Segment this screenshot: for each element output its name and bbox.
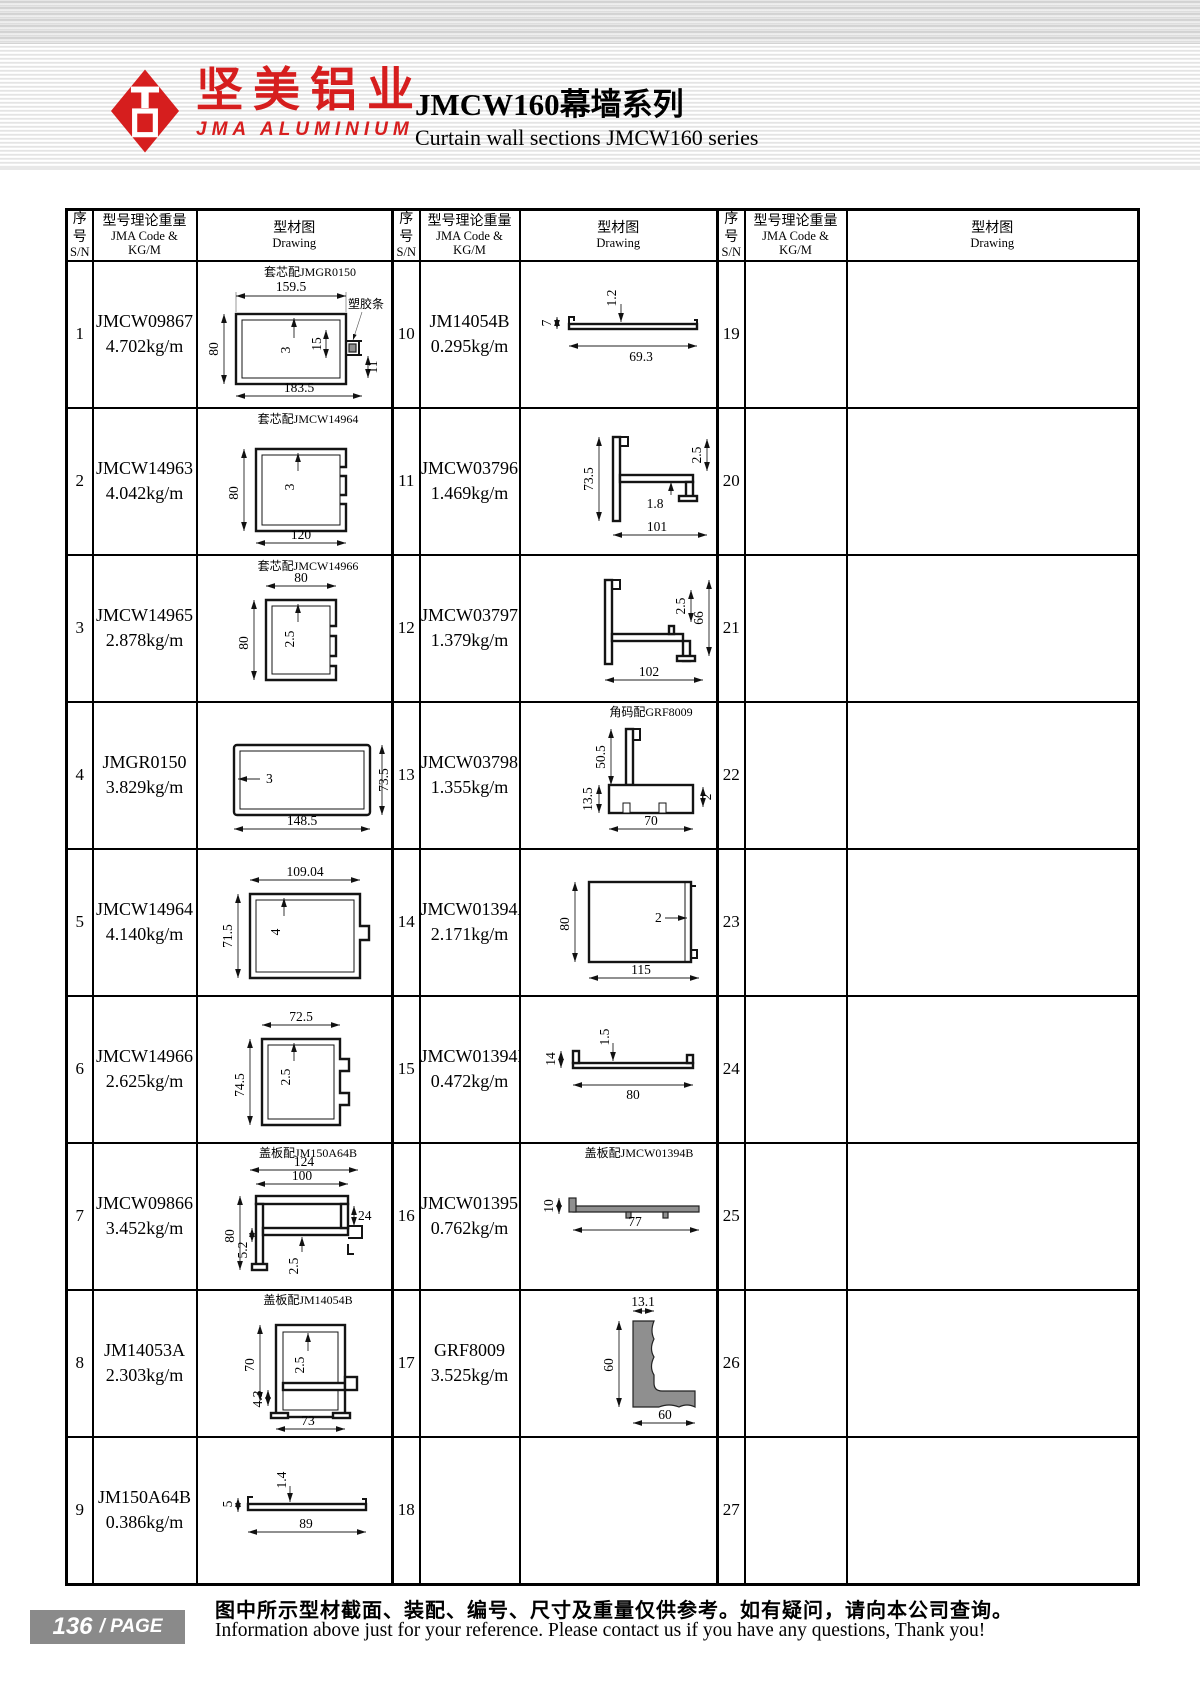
drawing-cell: 7 1.2 69.3: [520, 261, 718, 408]
sn-cell: 11: [393, 408, 420, 555]
dim-label: 7: [539, 319, 554, 326]
code-cell: JMCW037961.469kg/m: [420, 408, 520, 555]
sn-cell: 1: [67, 261, 93, 408]
dim-label: 80: [294, 570, 308, 585]
drawing-note: 套芯配JMCW14966: [257, 559, 358, 573]
dim-label: 115: [631, 962, 651, 977]
profile-drawing-jm14053a: 盖板配JM14054B 70 2.5 4.3 73: [198, 1291, 393, 1436]
dim-label: 13.5: [580, 787, 595, 811]
plastic-strip-label: 塑胶条: [347, 296, 383, 311]
dim-label: 50.5: [593, 745, 608, 769]
sn-cell: 16: [393, 1143, 420, 1290]
dim-label: 159.5: [275, 279, 306, 294]
header-top-band: [0, 0, 1200, 44]
dim-label: 73.5: [376, 768, 391, 792]
drawing-note: 盖板配JMCW01394B: [584, 1146, 693, 1160]
sn-cell: 19: [718, 261, 745, 408]
sn-cell: 14: [393, 849, 420, 996]
sn-cell: 13: [393, 702, 420, 849]
sn-cell: 22: [718, 702, 745, 849]
dim-label: 72.5: [289, 1009, 313, 1024]
code-cell: JMCW149652.878kg/m: [93, 555, 197, 702]
code-cell: JMCW01394A2.171kg/m: [420, 849, 520, 996]
dim-label: 2.5: [689, 446, 704, 463]
sn-cell: 26: [718, 1290, 745, 1437]
sn-cell: 27: [718, 1437, 745, 1585]
page-label: / PAGE: [100, 1616, 163, 1638]
col-header-drawing: 型材图Drawing: [847, 210, 1139, 261]
profile-drawing-jmcw03796: 73.5 2.5 1.8 101: [521, 409, 718, 554]
sn-cell: 4: [67, 702, 93, 849]
dim-label: 73: [301, 1413, 315, 1428]
footer-note-en: Information above just for your referenc…: [215, 1620, 985, 1642]
dim-label: 2.5: [673, 597, 688, 614]
code-cell-empty: [745, 1290, 847, 1437]
dim-label: 60: [658, 1407, 672, 1422]
page-number: 136: [52, 1613, 92, 1641]
code-cell: JM14053A2.303kg/m: [93, 1290, 197, 1437]
drawing-cell: 14 1.5 80: [520, 996, 718, 1143]
sn-cell: 15: [393, 996, 420, 1143]
dim-label: 24: [358, 1208, 372, 1223]
dim-label: 2.5: [292, 1356, 307, 1373]
dim-label: 4.3: [250, 1390, 265, 1407]
profile-drawing-jmcw14964: 109.04 71.5 4: [198, 850, 393, 995]
dim-label: 101: [646, 519, 666, 534]
col-header-sn: 序号S/N: [393, 210, 420, 261]
table-row: 1 JMCW098674.702kg/m 套芯配JMGR0150 159.5 8…: [67, 261, 1139, 408]
code-cell: JMCW01394B0.472kg/m: [420, 996, 520, 1143]
table-header-row: 序号S/N 型号理论重量JMA Code & KG/M 型材图Drawing 序…: [67, 210, 1139, 261]
dim-label: 80: [626, 1087, 640, 1102]
dim-label: 10: [541, 1199, 556, 1213]
footer-note-zh: 图中所示型材截面、装配、编号、尺寸及重量仅供参考。如有疑问，请向本公司查询。: [215, 1594, 1013, 1623]
dim-label: 124: [293, 1154, 314, 1169]
drawing-note: 盖板配JM14054B: [263, 1293, 352, 1307]
profile-drawing-jmcw01394a: 80 2 115: [521, 850, 718, 995]
drawing-cell-empty: [847, 555, 1139, 702]
dim-label: 60: [601, 1358, 616, 1372]
dim-label: 1.5: [597, 1028, 612, 1045]
brand-name-en: JMA ALUMINIUM: [196, 119, 424, 141]
brand-logo: 坚美铝业 JMA ALUMINIUM: [108, 66, 424, 156]
dim-label: 74.5: [232, 1073, 247, 1097]
drawing-cell-empty: [520, 1437, 718, 1585]
dim-label: 2: [699, 793, 714, 800]
sn-cell: 9: [67, 1437, 93, 1585]
dim-label: 70: [644, 813, 658, 828]
dim-label: 66: [691, 611, 706, 625]
sn-cell: 18: [393, 1437, 420, 1585]
table-row: 8 JM14053A2.303kg/m 盖板配JM14054B 70 2.5 4…: [67, 1290, 1139, 1437]
drawing-cell: 套芯配JMCW14964 80 3 120: [197, 408, 393, 555]
sn-cell: 8: [67, 1290, 93, 1437]
drawing-note: 角码配GRF8009: [609, 705, 692, 719]
code-cell-empty: [745, 555, 847, 702]
profile-catalog-table: 序号S/N 型号理论重量JMA Code & KG/M 型材图Drawing 序…: [65, 208, 1140, 1586]
sn-cell: 20: [718, 408, 745, 555]
code-cell: GRF80093.525kg/m: [420, 1290, 520, 1437]
sn-cell: 2: [67, 408, 93, 555]
dim-label: 2.5: [286, 1257, 301, 1274]
col-header-drawing: 型材图Drawing: [520, 210, 718, 261]
drawing-cell: 套芯配JMGR0150 159.5 80 3 15 11 183.5 塑胶条: [197, 261, 393, 408]
sn-cell: 6: [67, 996, 93, 1143]
drawing-cell: 73.5 2.5 1.8 101: [520, 408, 718, 555]
dim-label: 148.5: [286, 813, 317, 828]
dim-label: 2.5: [278, 1068, 293, 1085]
dim-label: 89: [299, 1516, 313, 1531]
dim-label: 70: [242, 1358, 257, 1372]
drawing-cell: 2.5 66 102: [520, 555, 718, 702]
sn-cell: 10: [393, 261, 420, 408]
table-row: 9 JM150A64B0.386kg/m 1.4 5 89 18 27: [67, 1437, 1139, 1585]
dim-label: 1.8: [646, 496, 663, 511]
sn-cell: 12: [393, 555, 420, 702]
code-cell: JMCW037971.379kg/m: [420, 555, 520, 702]
dim-label: 80: [206, 342, 221, 356]
page-number-badge: 136 / PAGE: [30, 1610, 185, 1644]
drawing-cell-empty: [847, 408, 1139, 555]
code-cell-empty: [745, 408, 847, 555]
table-row: 6 JMCW149662.625kg/m 72.5 74.5 2.5 15 JM…: [67, 996, 1139, 1143]
code-cell: JMCW098674.702kg/m: [93, 261, 197, 408]
col-header-sn: 序号S/N: [718, 210, 745, 261]
drawing-cell-empty: [847, 1143, 1139, 1290]
dim-label: 1.4: [274, 1471, 289, 1488]
drawing-cell-empty: [847, 261, 1139, 408]
dim-label: 80: [236, 636, 251, 650]
drawing-cell-empty: [847, 849, 1139, 996]
sn-cell: 23: [718, 849, 745, 996]
table-row: 4 JMGR01503.829kg/m 3 73.5 148.5 13 JMCW…: [67, 702, 1139, 849]
drawing-cell: 80 2 115: [520, 849, 718, 996]
page-subtitle: Curtain wall sections JMCW160 series: [415, 125, 758, 151]
col-header-code: 型号理论重量JMA Code & KG/M: [745, 210, 847, 261]
dim-label: 120: [290, 527, 311, 542]
sn-cell: 25: [718, 1143, 745, 1290]
dim-label: 80: [222, 1229, 237, 1243]
table-row: 2 JMCW149634.042kg/m 套芯配JMCW14964 80 3 1…: [67, 408, 1139, 555]
drawing-cell: 角码配GRF8009 50.5 13.5 2 70: [520, 702, 718, 849]
profile-drawing-jmgr0150: 3 73.5 148.5: [198, 703, 393, 848]
code-cell: JMCW037981.355kg/m: [420, 702, 520, 849]
drawing-cell-empty: [847, 1437, 1139, 1585]
page-title-block: JMCW160幕墙系列 Curtain wall sections JMCW16…: [415, 88, 758, 151]
profile-drawing-grf8009: 13.1 60 60: [521, 1291, 718, 1436]
col-header-drawing: 型材图Drawing: [197, 210, 393, 261]
drawing-note: 套芯配JMGR0150: [263, 265, 355, 279]
dim-label: 3: [266, 771, 273, 786]
code-cell-empty: [745, 1437, 847, 1585]
brand-name-zh: 坚美铝业: [196, 66, 424, 113]
dim-label: 71.5: [220, 924, 235, 948]
drawing-cell-empty: [847, 996, 1139, 1143]
header-bottom-edge: [0, 166, 1200, 170]
table-row: 7 JMCW098663.452kg/m 盖板配JM150A64B 124 10…: [67, 1143, 1139, 1290]
code-cell: JMCW149644.140kg/m: [93, 849, 197, 996]
code-cell-empty: [745, 261, 847, 408]
drawing-cell-empty: [847, 1290, 1139, 1437]
sn-cell: 5: [67, 849, 93, 996]
drawing-cell: 3 73.5 148.5: [197, 702, 393, 849]
drawing-cell: 72.5 74.5 2.5: [197, 996, 393, 1143]
sn-cell: 3: [67, 555, 93, 702]
profile-drawing-jmcw14966: 72.5 74.5 2.5: [198, 997, 393, 1142]
profile-drawing-jm14054b: 7 1.2 69.3: [521, 262, 718, 407]
dim-label: 73.5: [581, 467, 596, 491]
sn-cell: 21: [718, 555, 745, 702]
profile-drawing-jmcw03797: 2.5 66 102: [521, 556, 718, 701]
code-cell: JMCW149662.625kg/m: [93, 996, 197, 1143]
dim-label: 2: [655, 910, 662, 925]
dim-label: 77: [628, 1214, 642, 1229]
profile-drawing-jmcw09867: 套芯配JMGR0150 159.5 80 3 15 11 183.5 塑胶条: [198, 262, 393, 407]
dim-label: 15: [309, 337, 324, 351]
profile-drawing-jmcw01394b: 14 1.5 80: [521, 997, 718, 1142]
code-cell-empty: [745, 1143, 847, 1290]
code-cell-empty: [420, 1437, 520, 1585]
code-cell-empty: [745, 702, 847, 849]
dim-label: 183.5: [283, 380, 314, 395]
dim-label: 2.5: [282, 630, 297, 647]
drawing-cell: 盖板配JMCW01394B 10 77: [520, 1143, 718, 1290]
drawing-cell: 109.04 71.5 4: [197, 849, 393, 996]
drawing-cell: 13.1 60 60: [520, 1290, 718, 1437]
table-row: 5 JMCW149644.140kg/m 109.04 71.5 4 14 JM…: [67, 849, 1139, 996]
profile-drawing-jm150a64b: 1.4 5 89: [198, 1438, 393, 1583]
sn-cell: 7: [67, 1143, 93, 1290]
col-header-sn: 序号S/N: [67, 210, 93, 261]
code-cell: JMGR01503.829kg/m: [93, 702, 197, 849]
dim-label: 1.2: [604, 289, 619, 306]
drawing-cell: 盖板配JM150A64B 124 100 80 5.2 24 2.5: [197, 1143, 393, 1290]
code-cell: JM150A64B0.386kg/m: [93, 1437, 197, 1585]
code-cell-empty: [745, 849, 847, 996]
dim-label: 109.04: [286, 864, 323, 879]
dim-label: 100: [291, 1168, 312, 1183]
dim-label: 4: [268, 928, 283, 935]
profile-drawing-jmcw03798: 角码配GRF8009 50.5 13.5 2 70: [521, 703, 718, 848]
jma-diamond-logo-icon: [108, 66, 182, 156]
dim-label: 5.2: [235, 1241, 250, 1258]
table-row: 3 JMCW149652.878kg/m 套芯配JMCW14966 80 80 …: [67, 555, 1139, 702]
drawing-cell: 1.4 5 89: [197, 1437, 393, 1585]
dim-label: 13.1: [631, 1294, 655, 1309]
col-header-code: 型号理论重量JMA Code & KG/M: [420, 210, 520, 261]
dim-label: 102: [638, 664, 658, 679]
dim-label: 5: [220, 1500, 235, 1507]
drawing-cell: 盖板配JM14054B 70 2.5 4.3 73: [197, 1290, 393, 1437]
dim-label: 14: [543, 1052, 558, 1066]
code-cell: JMCW013950.762kg/m: [420, 1143, 520, 1290]
drawing-note: 套芯配JMCW14964: [257, 412, 358, 426]
dim-label: 69.3: [629, 349, 653, 364]
code-cell-empty: [745, 996, 847, 1143]
dim-label: 3: [282, 483, 297, 490]
drawing-cell-empty: [847, 702, 1139, 849]
drawing-cell: 套芯配JMCW14966 80 80 2.5: [197, 555, 393, 702]
sn-cell: 17: [393, 1290, 420, 1437]
dim-label: 11: [365, 360, 380, 373]
profile-drawing-jmcw09866: 盖板配JM150A64B 124 100 80 5.2 24 2.5: [198, 1144, 393, 1289]
profile-drawing-jmcw01395: 盖板配JMCW01394B 10 77: [521, 1144, 718, 1289]
sn-cell: 24: [718, 996, 745, 1143]
code-cell: JM14054B0.295kg/m: [420, 261, 520, 408]
dim-label: 3: [278, 346, 293, 353]
profile-drawing-jmcw14965: 套芯配JMCW14966 80 80 2.5: [198, 556, 393, 701]
dim-label: 80: [226, 486, 241, 500]
dim-label: 80: [557, 917, 572, 931]
page-title: JMCW160幕墙系列: [415, 88, 758, 122]
profile-drawing-jmcw14963: 套芯配JMCW14964 80 3 120: [198, 409, 393, 554]
code-cell: JMCW149634.042kg/m: [93, 408, 197, 555]
code-cell: JMCW098663.452kg/m: [93, 1143, 197, 1290]
col-header-code: 型号理论重量JMA Code & KG/M: [93, 210, 197, 261]
